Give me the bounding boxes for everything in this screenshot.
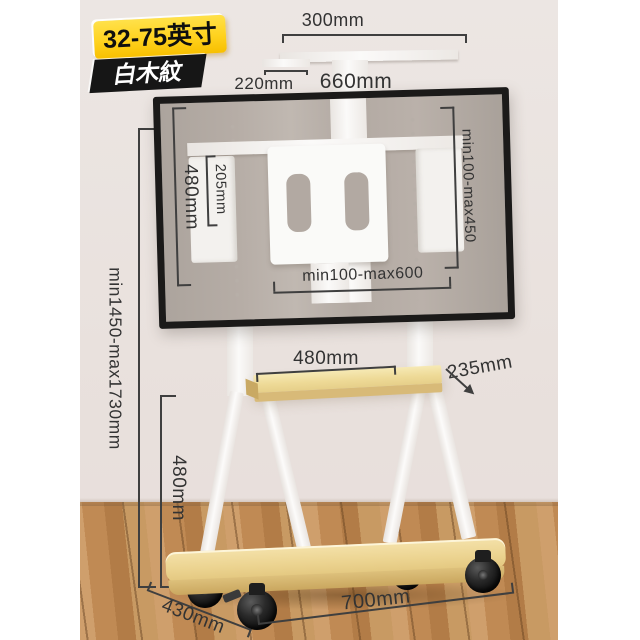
caster-wheel-front-right: [465, 557, 501, 593]
lower-height-tick-top: [160, 395, 176, 397]
wall-floor-junction: [80, 498, 558, 506]
lower-height-label: 480mm: [167, 433, 189, 543]
size-badge: 32-75英寸: [93, 15, 227, 60]
overall-height-label: min1450-max1730mm: [105, 199, 126, 519]
bracket-height-tick-bottom: [177, 284, 191, 286]
mount-plate-slot-left: [286, 174, 312, 233]
shelf-width-tick-l: [256, 373, 258, 382]
vesa-vertical-label: min100-max450: [458, 111, 479, 261]
plate-height-tick-bottom: [207, 224, 217, 226]
top-width-dim-line: [282, 34, 467, 36]
vesa-vertical-tick-bottom: [445, 267, 459, 269]
shelf-depth-arrowhead: [463, 384, 477, 398]
overall-height-dim-line: [138, 128, 140, 588]
vesa-vertical-tick-top: [440, 107, 454, 109]
finish-badge: 白木紋: [89, 54, 206, 93]
lower-height-dim-line: [160, 395, 162, 588]
tv-screen: 480mm 205mm min100-max450 min100-max600: [160, 95, 494, 308]
top-width-dim-tick-r: [465, 34, 467, 43]
top-mount-bar-side: [262, 59, 310, 67]
bracket-height-tick-top: [172, 107, 186, 109]
top-width-dim-tick-l: [282, 34, 284, 43]
vesa-horizontal-tick-r: [449, 277, 451, 287]
tv-outline: 480mm 205mm min100-max450 min100-max600: [153, 87, 515, 329]
bracket-height-label: 480mm: [178, 142, 203, 253]
shelf-width-tick-r: [394, 366, 396, 375]
mount-plate-slot-right: [344, 172, 370, 231]
bracket-height-dim-line: [172, 107, 179, 286]
plate-height-label: 205mm: [211, 154, 229, 224]
top-width-label: 300mm: [273, 10, 393, 31]
overall-height-dim-tick-top: [138, 128, 154, 130]
product-diagram: min1450-max1730mm 300mm 220mm 660mm: [0, 0, 640, 640]
caster-fork: [249, 583, 265, 595]
mount-plate: [267, 144, 388, 265]
photo-scene: min1450-max1730mm 300mm 220mm 660mm: [80, 0, 558, 640]
caster-hub: [478, 570, 489, 581]
shelf-depth-label: 235mm: [419, 347, 541, 390]
caster-fork: [475, 550, 491, 562]
vesa-horizontal-tick-l: [273, 282, 275, 292]
